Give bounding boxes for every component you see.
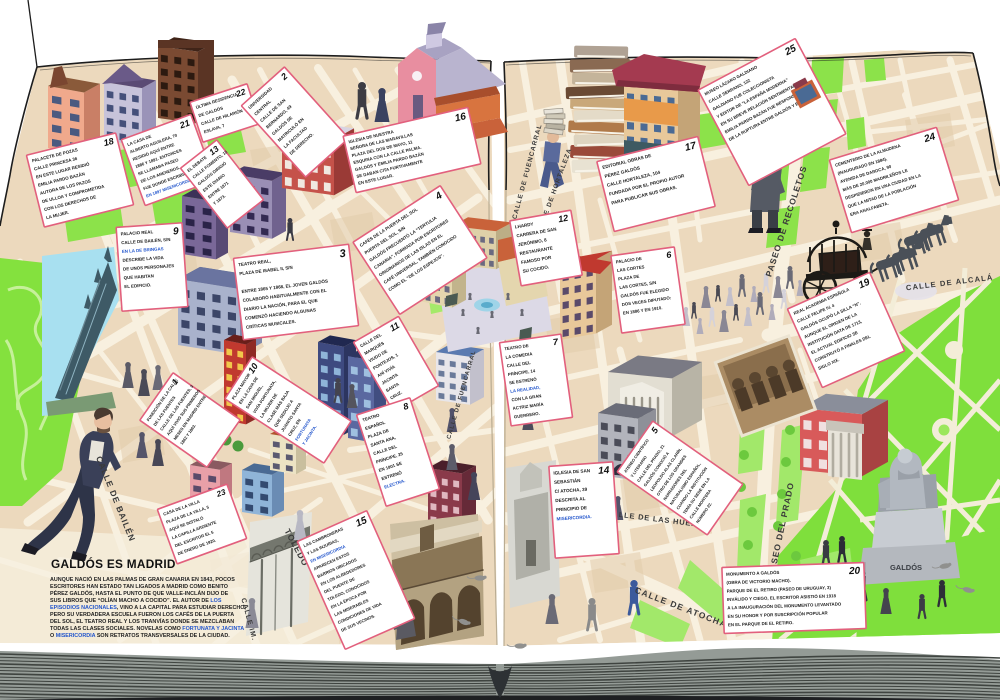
svg-text:AUNQUE NACIÓ EN LAS PALMAS DE: AUNQUE NACIÓ EN LAS PALMAS DE GRAN CANAR… [50,575,235,583]
svg-text:ESCRITORES HAN ESTADO TAN LIGA: ESCRITORES HAN ESTADO TAN LIGADOS A MADR… [50,584,228,590]
svg-text:O MISERICORDIA SON RETRATOS TR: O MISERICORDIA SON RETRATOS TRANSVERSALE… [50,633,230,639]
svg-text:EPISODIOS NACIONALES, VINO A L: EPISODIOS NACIONALES, VINO A LA CAPITAL … [50,605,246,611]
svg-text:14: 14 [598,465,610,477]
svg-text:TODAS LAS CLASES SOCIALES. NOV: TODAS LAS CLASES SOCIALES. NOVELAS COMO … [50,626,244,632]
svg-text:GALDÓS: GALDÓS [890,563,922,572]
svg-text:12: 12 [557,213,569,225]
svg-text:GALDÓS ES MADRID: GALDÓS ES MADRID [51,557,176,571]
svg-text:SUS LIBROS QUE “OLÍAN MACHO A: SUS LIBROS QUE “OLÍAN MACHO A COCIDO”. E… [50,596,222,604]
svg-text:20: 20 [848,566,861,577]
svg-text:PERO SU VERDADERA ESCUELA FUER: PERO SU VERDADERA ESCUELA FUERON LOS CAF… [50,610,234,618]
svg-text:PÉREZ GALDÓS, HASTA EL PUNTO D: PÉREZ GALDÓS, HASTA EL PUNTO DE QUE VALL… [50,589,229,597]
svg-text:DEL SOL, EL TEATRO REAL Y LOS: DEL SOL, EL TEATRO REAL Y LOS TRANVÍAS D… [50,617,234,625]
